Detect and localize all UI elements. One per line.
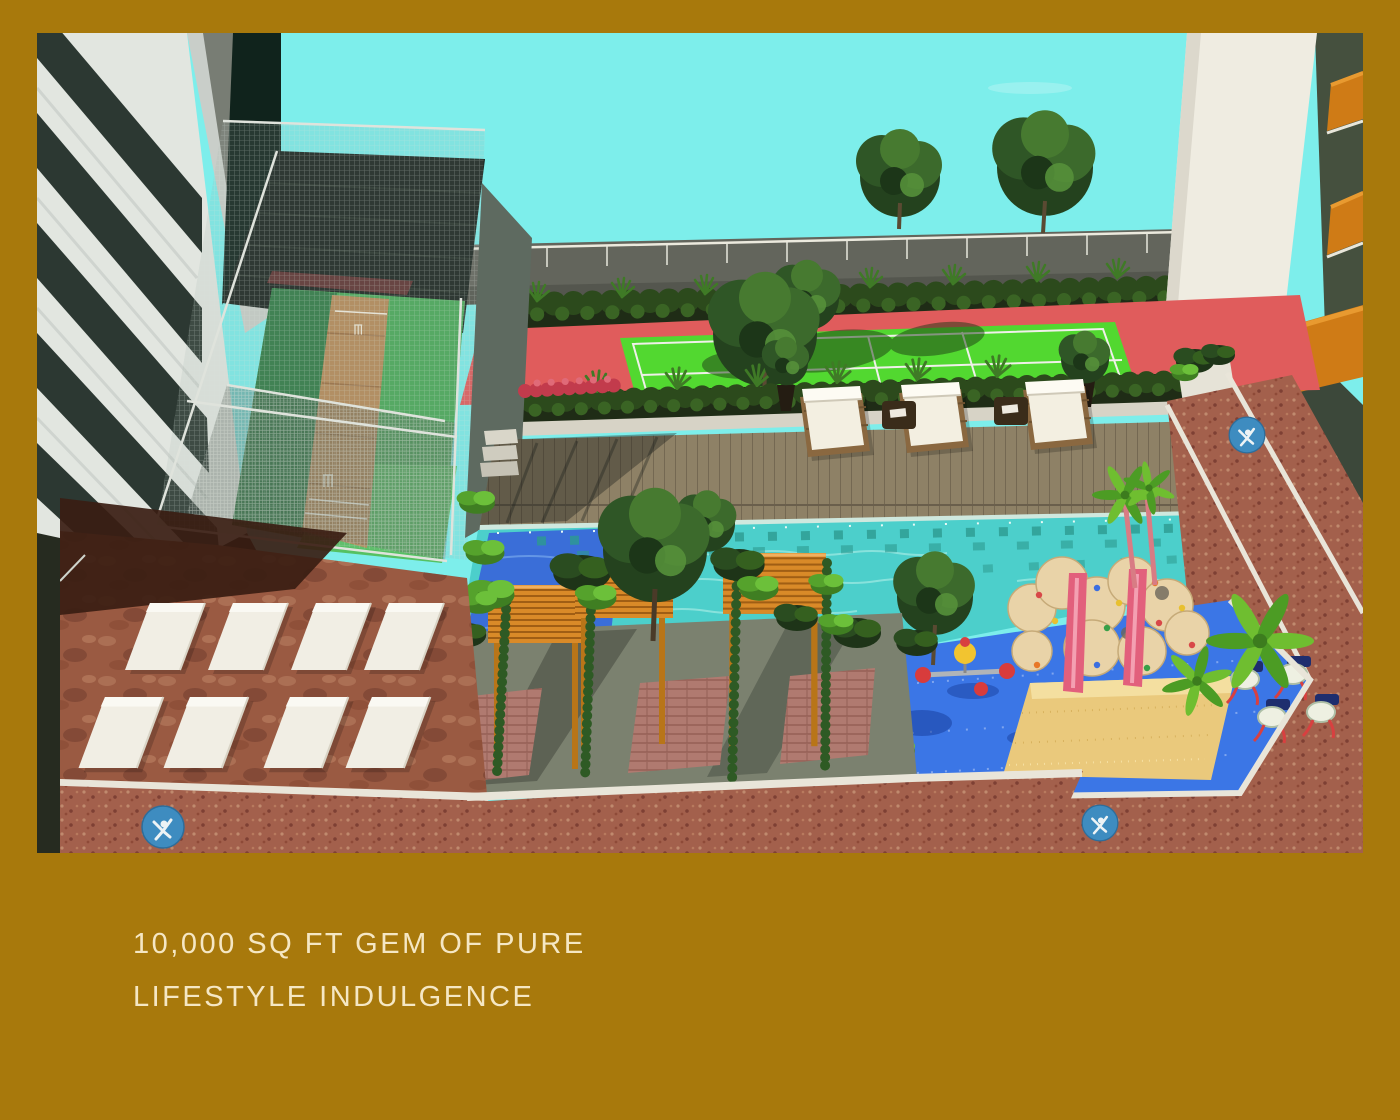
medallion-middle — [1082, 805, 1118, 841]
cloud-wisp — [988, 82, 1072, 94]
sun-lounger — [800, 386, 874, 461]
amenity-render-photo — [37, 33, 1363, 853]
sand-pit — [1003, 676, 1235, 780]
scene-svg — [37, 33, 1363, 853]
side-table — [882, 401, 916, 429]
caption: 10,000 SQ FT GEM OF PURE LIFESTYLE INDUL… — [133, 918, 586, 1024]
caption-line-2: LIFESTYLE INDULGENCE — [133, 971, 586, 1024]
medallion-left — [142, 806, 184, 848]
bougainvillea — [525, 385, 622, 391]
left-edge-shadow — [37, 533, 60, 853]
sun-lounger — [1023, 379, 1097, 454]
deck-steps — [480, 429, 519, 477]
caption-line-1: 10,000 SQ FT GEM OF PURE — [133, 918, 586, 971]
side-table — [994, 397, 1028, 425]
medallion-right — [1229, 417, 1265, 453]
